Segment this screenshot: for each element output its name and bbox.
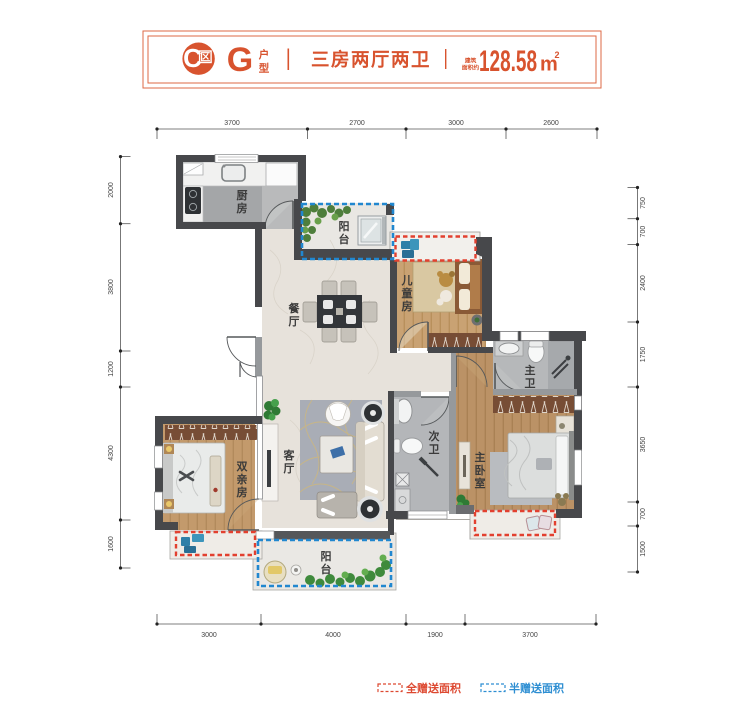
svg-text:房: 房	[237, 201, 248, 215]
svg-text:2600: 2600	[543, 120, 559, 127]
svg-text:1200: 1200	[108, 361, 115, 377]
svg-text:卫: 卫	[429, 443, 440, 456]
svg-text:儿: 儿	[401, 274, 413, 287]
svg-text:区: 区	[200, 52, 210, 64]
svg-text:主: 主	[475, 450, 486, 464]
svg-text:厨: 厨	[237, 189, 248, 202]
svg-text:双: 双	[237, 460, 248, 473]
svg-text:3700: 3700	[224, 120, 240, 127]
svg-text:4000: 4000	[325, 632, 341, 639]
svg-text:750: 750	[640, 197, 647, 209]
svg-text:阳: 阳	[321, 549, 332, 563]
svg-text:卧: 卧	[475, 464, 486, 477]
svg-text:2400: 2400	[640, 275, 647, 291]
svg-text:主: 主	[525, 363, 536, 377]
svg-text:1600: 1600	[108, 536, 115, 552]
svg-text:3650: 3650	[640, 437, 647, 453]
svg-text:4300: 4300	[108, 445, 115, 461]
svg-text:亲: 亲	[237, 472, 248, 486]
svg-text:客: 客	[283, 448, 296, 462]
svg-text:次: 次	[429, 429, 440, 443]
svg-text:1500: 1500	[640, 541, 647, 557]
svg-text:128.58: 128.58	[479, 45, 537, 78]
svg-text:G: G	[227, 41, 253, 79]
svg-text:3000: 3000	[448, 120, 464, 127]
svg-text:2700: 2700	[349, 120, 365, 127]
svg-text:餐: 餐	[288, 301, 301, 315]
svg-text:1900: 1900	[427, 632, 443, 639]
svg-text:户: 户	[258, 48, 270, 61]
svg-text:台: 台	[339, 232, 350, 246]
svg-text:700: 700	[640, 226, 647, 238]
svg-text:房: 房	[237, 485, 248, 499]
svg-text:童: 童	[402, 286, 413, 300]
svg-text:半赠送面积: 半赠送面积	[509, 681, 564, 695]
svg-text:厅: 厅	[289, 315, 300, 328]
svg-text:三房两厅两卫: 三房两厅两卫	[311, 49, 431, 70]
svg-text:2000: 2000	[108, 182, 115, 198]
svg-text:厅: 厅	[284, 462, 295, 475]
svg-text:室: 室	[475, 476, 486, 490]
svg-text:卫: 卫	[525, 377, 536, 390]
svg-text:台: 台	[321, 562, 332, 576]
svg-text:2: 2	[554, 50, 559, 60]
svg-text:3700: 3700	[522, 632, 538, 639]
svg-text:700: 700	[640, 508, 647, 520]
svg-text:3800: 3800	[108, 279, 115, 295]
svg-text:房: 房	[402, 299, 413, 313]
svg-text:阳: 阳	[339, 219, 350, 233]
svg-text:型: 型	[259, 62, 270, 75]
svg-text:面积约: 面积约	[462, 64, 480, 72]
svg-text:1750: 1750	[640, 347, 647, 363]
svg-text:全赠送面积: 全赠送面积	[405, 681, 461, 695]
svg-text:建筑: 建筑	[464, 57, 477, 65]
svg-text:3000: 3000	[201, 632, 217, 639]
